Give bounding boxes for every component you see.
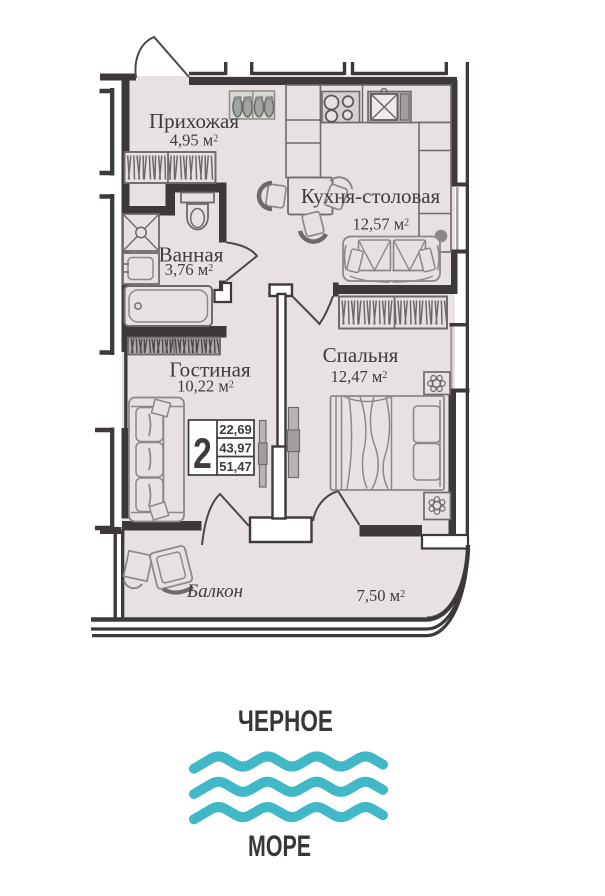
svg-text:12,57 м2: 12,57 м2 bbox=[352, 215, 409, 234]
svg-text:22,69: 22,69 bbox=[219, 422, 252, 437]
svg-text:10,22 м2: 10,22 м2 bbox=[177, 377, 234, 396]
svg-text:Спальня: Спальня bbox=[323, 343, 399, 367]
svg-text:Кухня-столовая: Кухня-столовая bbox=[301, 184, 441, 208]
svg-text:12,47 м2: 12,47 м2 bbox=[331, 367, 388, 386]
svg-text:43,97: 43,97 bbox=[219, 441, 252, 456]
svg-text:4,95 м2: 4,95 м2 bbox=[170, 131, 218, 150]
svg-text:Балкон: Балкон bbox=[186, 581, 243, 602]
svg-text:Прихожая: Прихожая bbox=[149, 109, 239, 133]
svg-text:3,76 м2: 3,76 м2 bbox=[165, 260, 213, 279]
svg-text:7,50 м2: 7,50 м2 bbox=[357, 586, 405, 605]
svg-text:ЧЕРНОЕ: ЧЕРНОЕ bbox=[238, 705, 333, 738]
svg-text:2: 2 bbox=[193, 430, 212, 478]
svg-text:51,47: 51,47 bbox=[219, 459, 252, 474]
svg-text:МОРЕ: МОРЕ bbox=[248, 830, 311, 863]
